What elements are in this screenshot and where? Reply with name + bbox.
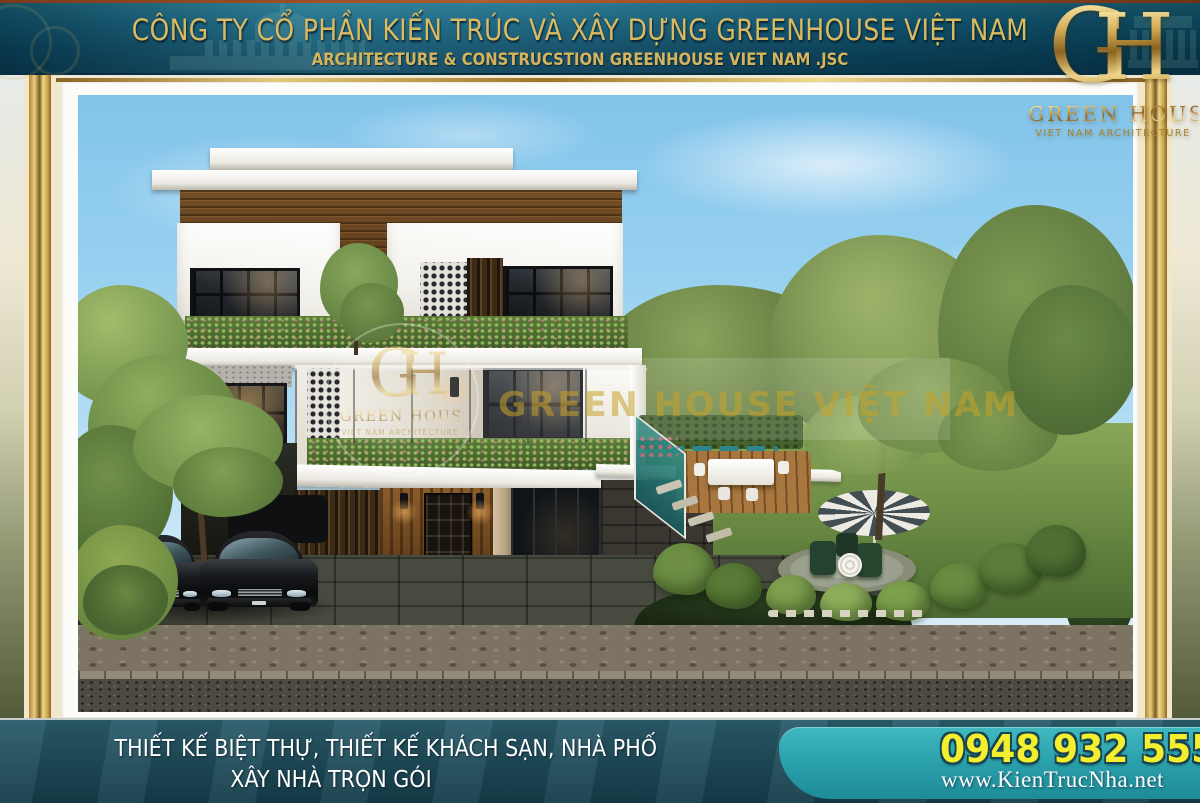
window-top-right	[503, 266, 613, 320]
right-gold-stripe	[1145, 75, 1167, 718]
services-line-2: XÂY NHÀ TRỌN GÓI	[115, 764, 548, 795]
window-top-left	[190, 268, 300, 320]
services-line-1: THIẾT KẾ BIỆT THỰ, THIẾT KẾ KHÁCH SẠN, N…	[115, 733, 548, 764]
watermark-monogram-h: H	[398, 345, 449, 403]
services-text: THIẾT KẾ BIỆT THỰ, THIẾT KẾ KHÁCH SẠN, N…	[85, 733, 577, 795]
left-frame-band	[24, 75, 58, 718]
architectural-rendering: G H GREEN HOUSE VIET NAM ARCHITECTURE GR…	[78, 95, 1133, 712]
garden-chair	[810, 541, 836, 575]
tree-canopy	[1008, 285, 1133, 435]
photo-mat: G H GREEN HOUSE VIET NAM ARCHITECTURE GR…	[62, 82, 1138, 718]
promo-page: G H GREEN HOUSE VIET NAM ARCHITECTURE GR…	[0, 0, 1200, 803]
header-banner: CÔNG TY CỔ PHẦN KIẾN TRÚC VÀ XÂY DỰNG GR…	[0, 0, 1200, 75]
pebble-edging	[768, 610, 928, 617]
logo-monogram-h: H	[1094, 2, 1174, 94]
cloud	[638, 110, 1018, 220]
entry-lamp-glow	[390, 499, 418, 525]
garden-shrub	[706, 563, 762, 609]
logo-tagline: VIET NAM ARCHITECTURE	[1031, 128, 1194, 139]
company-subtitle: ARCHITECTURE & CONSTRUCSTION GREENHOUSE …	[58, 50, 1102, 69]
garden-shrub	[766, 575, 816, 615]
villa-roof-main	[152, 170, 637, 190]
right-frame-band	[1138, 75, 1172, 718]
watermark-logo-name: GREEN HOUSE	[340, 409, 460, 425]
banner-text-block: CÔNG TY CỔ PHẦN KIẾN TRÚC VÀ XÂY DỰNG GR…	[0, 0, 1160, 75]
footer-banner: THIẾT KẾ BIỆT THỰ, THIẾT KẾ KHÁCH SẠN, N…	[0, 718, 1200, 803]
dining-chair	[746, 488, 758, 501]
watermark-logo: G H GREEN HOUSE VIET NAM ARCHITECTURE	[340, 343, 460, 443]
right-frame-background	[1170, 75, 1200, 718]
entry-lamp-glow	[466, 499, 494, 525]
watermark-text: GREEN HOUSE VIỆT NAM	[498, 385, 1019, 425]
logo-name: GREEN HOUSE	[1028, 102, 1198, 126]
dining-chair	[718, 487, 730, 500]
website-url: www.KienTrucNha.net	[941, 767, 1164, 793]
dining-chair	[694, 463, 705, 476]
drum-side-table	[838, 553, 862, 577]
dining-chair	[778, 461, 789, 474]
banner-top-rule	[0, 0, 1200, 3]
company-title: CÔNG TY CỔ PHẦN KIẾN TRÚC VÀ XÂY DỰNG GR…	[81, 13, 1079, 47]
left-gold-stripe	[29, 75, 51, 718]
outdoor-dining-table	[708, 459, 774, 485]
footer-top-rule	[0, 718, 1200, 720]
garden-shrub	[1026, 525, 1086, 577]
phone-number: 0948 932 555	[940, 727, 1200, 771]
cobblestone-sidewalk	[78, 625, 1133, 677]
villa-roof-upper	[210, 148, 513, 170]
watermark-logo-tagline: VIET NAM ARCHITECTURE	[340, 428, 460, 437]
greenhouse-logo: G H GREEN HOUSE VIET NAM ARCHITECTURE	[1028, 2, 1198, 152]
road-surface	[78, 679, 1133, 712]
black-sedan	[200, 531, 318, 611]
